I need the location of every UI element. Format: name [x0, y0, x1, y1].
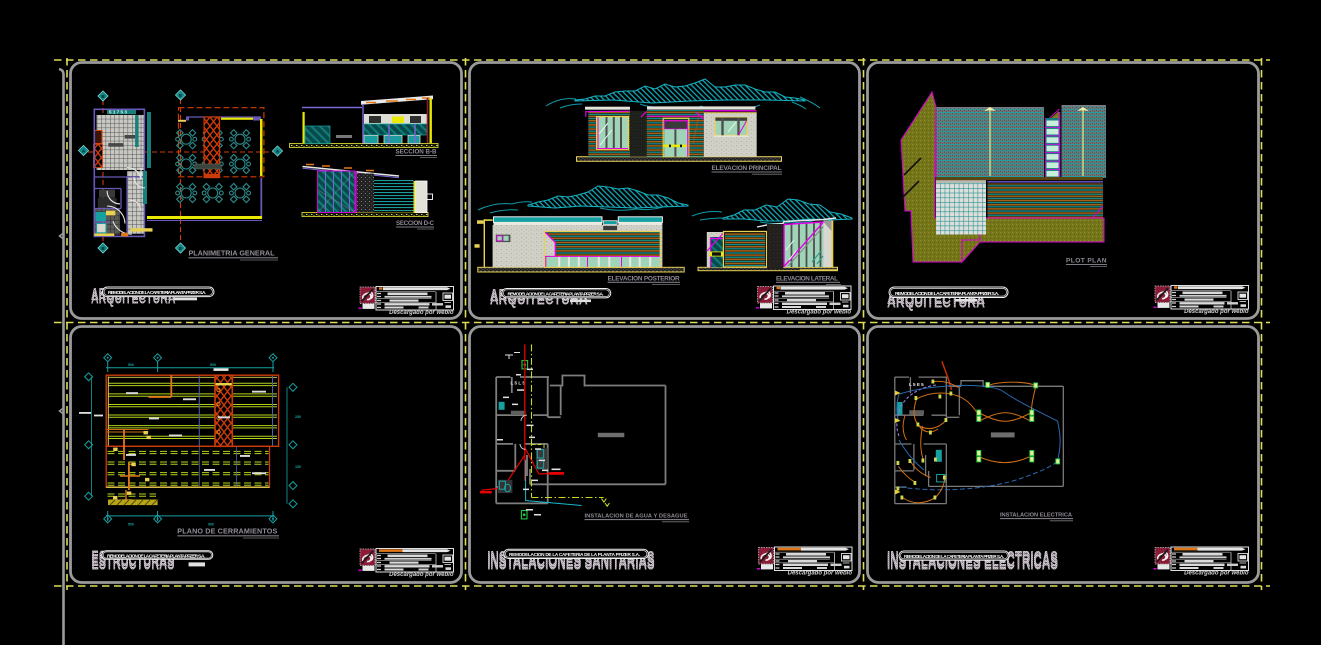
- svg-text:Descargado por weblo: Descargado por weblo: [788, 571, 853, 577]
- svg-text:INSTALACION ELECTRICA: INSTALACION ELECTRICA: [1000, 512, 1072, 518]
- svg-text:REMODELACION DE LA CAFETERIA P: REMODELACION DE LA CAFETERIA PLANTA PFIZ…: [107, 553, 205, 558]
- svg-text:250: 250: [295, 415, 301, 419]
- svg-text:Descargado por weblo: Descargado por weblo: [1184, 309, 1249, 315]
- svg-text:Descargado por weblo: Descargado por weblo: [1184, 571, 1249, 577]
- svg-text:ELEVACION POSTERIOR: ELEVACION POSTERIOR: [608, 275, 680, 282]
- svg-text:REMODELACION DE LA CAFETERIA P: REMODELACION DE LA CAFETERIA PLANTA PFIZ…: [904, 554, 1004, 559]
- svg-text:E: E: [179, 93, 182, 98]
- svg-text:REMODELACION DE LA CAFETERIA D: REMODELACION DE LA CAFETERIA DE LA PLANT…: [509, 552, 640, 557]
- svg-text:PLOT PLAN: PLOT PLAN: [1066, 258, 1107, 265]
- svg-text:500: 500: [128, 523, 134, 527]
- svg-text:PLANO DE CERRAMIENTOS: PLANO DE CERRAMIENTOS: [177, 527, 277, 536]
- svg-text:SECCION B-B: SECCION B-B: [396, 149, 438, 156]
- svg-text:500: 500: [128, 363, 134, 367]
- svg-text:L 5 L 5: L 5 L 5: [511, 381, 526, 386]
- svg-text:5 1 7 5 3: 5 1 7 5 3: [109, 110, 127, 115]
- svg-text:Descargado por weblo: Descargado por weblo: [787, 310, 852, 316]
- svg-text:L 5 E 5: L 5 E 5: [909, 382, 924, 387]
- svg-text:E: E: [179, 246, 182, 251]
- svg-text:Descargado por weblo: Descargado por weblo: [389, 310, 454, 316]
- svg-text:PLANIMETRIA GENERAL: PLANIMETRIA GENERAL: [189, 249, 276, 258]
- svg-text:SECCION D-C: SECCION D-C: [396, 220, 435, 227]
- svg-text:ELEVACION LATERAL: ELEVACION LATERAL: [776, 275, 838, 282]
- svg-text:500: 500: [210, 363, 216, 367]
- svg-text:Descargado por weblo: Descargado por weblo: [389, 572, 454, 578]
- svg-text:150: 150: [295, 465, 301, 469]
- svg-text:INSTALACION DE AGUA Y DESAGUE: INSTALACION DE AGUA Y DESAGUE: [585, 513, 688, 519]
- svg-text:ELEVACION PRINCIPAL: ELEVACION PRINCIPAL: [712, 165, 782, 172]
- svg-text:REMODELACION DE LA CAFETERIA P: REMODELACION DE LA CAFETERIA PLANTA PFIZ…: [895, 291, 1000, 297]
- svg-text:REMODELACION DE LA CAFETERIA P: REMODELACION DE LA CAFETERIA PLANTA PFIZ…: [508, 291, 604, 296]
- svg-text:REMODELACION DE LA CAFETERIA P: REMODELACION DE LA CAFETERIA PLANTA PFIZ…: [108, 290, 206, 295]
